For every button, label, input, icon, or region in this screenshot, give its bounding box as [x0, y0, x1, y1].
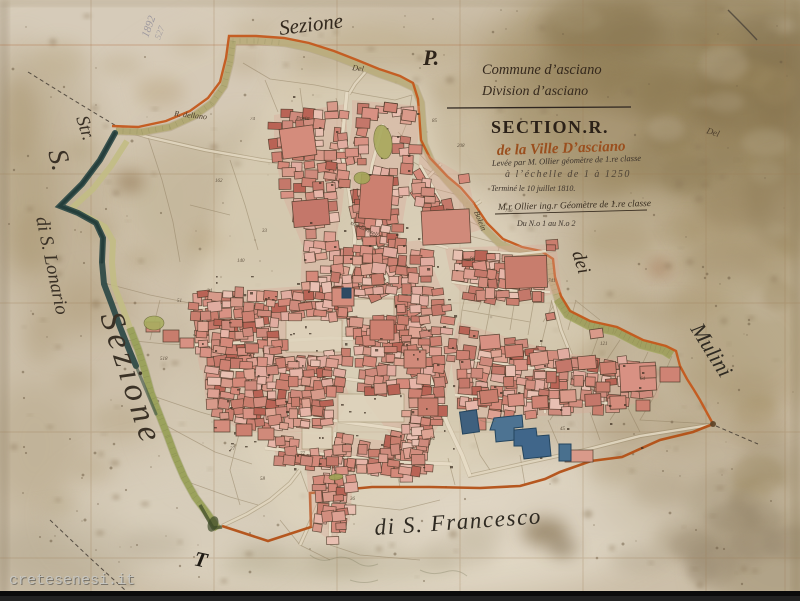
svg-text:Porta: Porta [295, 116, 310, 122]
svg-text:Division d’asciano: Division d’asciano [481, 84, 588, 99]
svg-text:518: 518 [160, 357, 168, 362]
svg-text:741: 741 [548, 279, 556, 284]
svg-text:Terminé le 10 juillet 1810.: Terminé le 10 juillet 1810. [491, 184, 575, 193]
svg-text:33: 33 [262, 229, 268, 234]
svg-text:cretesenesi.it: cretesenesi.it [9, 572, 135, 589]
svg-text:208: 208 [457, 144, 465, 149]
svg-text:74: 74 [250, 117, 256, 122]
svg-text:Commune d’asciano: Commune d’asciano [482, 62, 602, 78]
svg-text:à l’échelle de 1 à 1250: à l’échelle de 1 à 1250 [505, 169, 631, 180]
svg-text:51: 51 [177, 299, 182, 304]
svg-text:45: 45 [560, 427, 566, 432]
svg-text:58: 58 [260, 477, 266, 482]
svg-text:92: 92 [430, 437, 436, 442]
svg-text:P.: P. [422, 45, 439, 70]
svg-text:36: 36 [350, 497, 356, 502]
svg-text:77: 77 [300, 452, 306, 457]
svg-text:Del: Del [351, 63, 365, 74]
svg-text:24: 24 [207, 289, 213, 294]
svg-text:27: 27 [230, 447, 236, 452]
svg-text:SECTION.R.: SECTION.R. [491, 117, 609, 137]
svg-text:121: 121 [600, 342, 608, 347]
svg-text:162: 162 [215, 179, 223, 184]
svg-text:140: 140 [237, 259, 245, 264]
svg-text:85: 85 [432, 119, 438, 124]
svg-text:Du N.o 1 au N.o 2: Du N.o 1 au N.o 2 [516, 219, 575, 228]
svg-text:64: 64 [640, 377, 646, 382]
svg-text:96: 96 [470, 257, 476, 262]
